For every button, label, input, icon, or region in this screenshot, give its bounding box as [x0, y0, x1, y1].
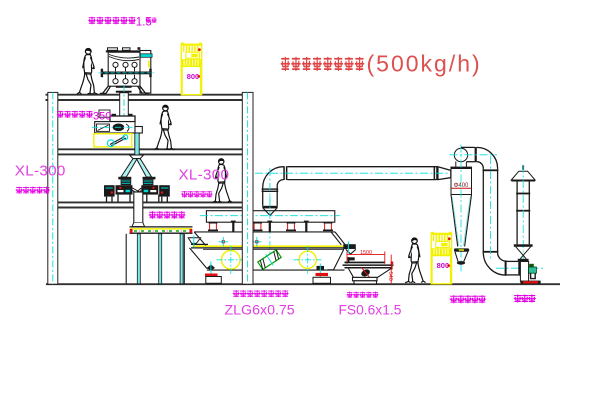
svg-text:XL-300: XL-300 [15, 163, 66, 180]
svg-text:540: 540 [387, 272, 393, 281]
svg-text:ZLG6x0.75: ZLG6x0.75 [225, 303, 295, 319]
svg-text:1.5: 1.5 [136, 16, 152, 28]
svg-text:1500: 1500 [360, 250, 372, 256]
svg-text:FS0.6x1.5: FS0.6x1.5 [339, 303, 402, 318]
svg-text:XL-300: XL-300 [179, 167, 230, 184]
svg-text:(500kg/h): (500kg/h) [367, 51, 482, 77]
svg-text:350: 350 [93, 110, 111, 122]
